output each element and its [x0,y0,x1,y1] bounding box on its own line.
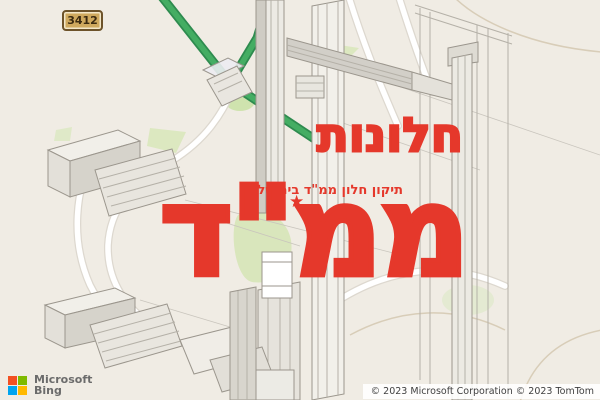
microsoft-logo-icon [8,376,27,395]
road-shield: 3412 [62,10,103,31]
bing-logo-text: Microsoft Bing [34,374,92,396]
bing-logo-line2: Bing [34,384,62,397]
map-and-cad-layer [0,0,600,400]
bing-map-canvas[interactable]: 3412 חלונות תיקון חלון ממ"ד בירושלים ★ מ… [0,0,600,400]
map-attribution: © 2023 Microsoft Corporation © 2023 TomT… [363,384,600,399]
cad-technical-drawing [45,0,600,400]
cad-bracket-center [296,76,324,98]
cad-mullion-left [256,0,300,400]
cad-guide-lines [140,85,600,330]
cad-mullion-right [448,42,478,400]
bing-logo[interactable]: Microsoft Bing [8,374,92,396]
